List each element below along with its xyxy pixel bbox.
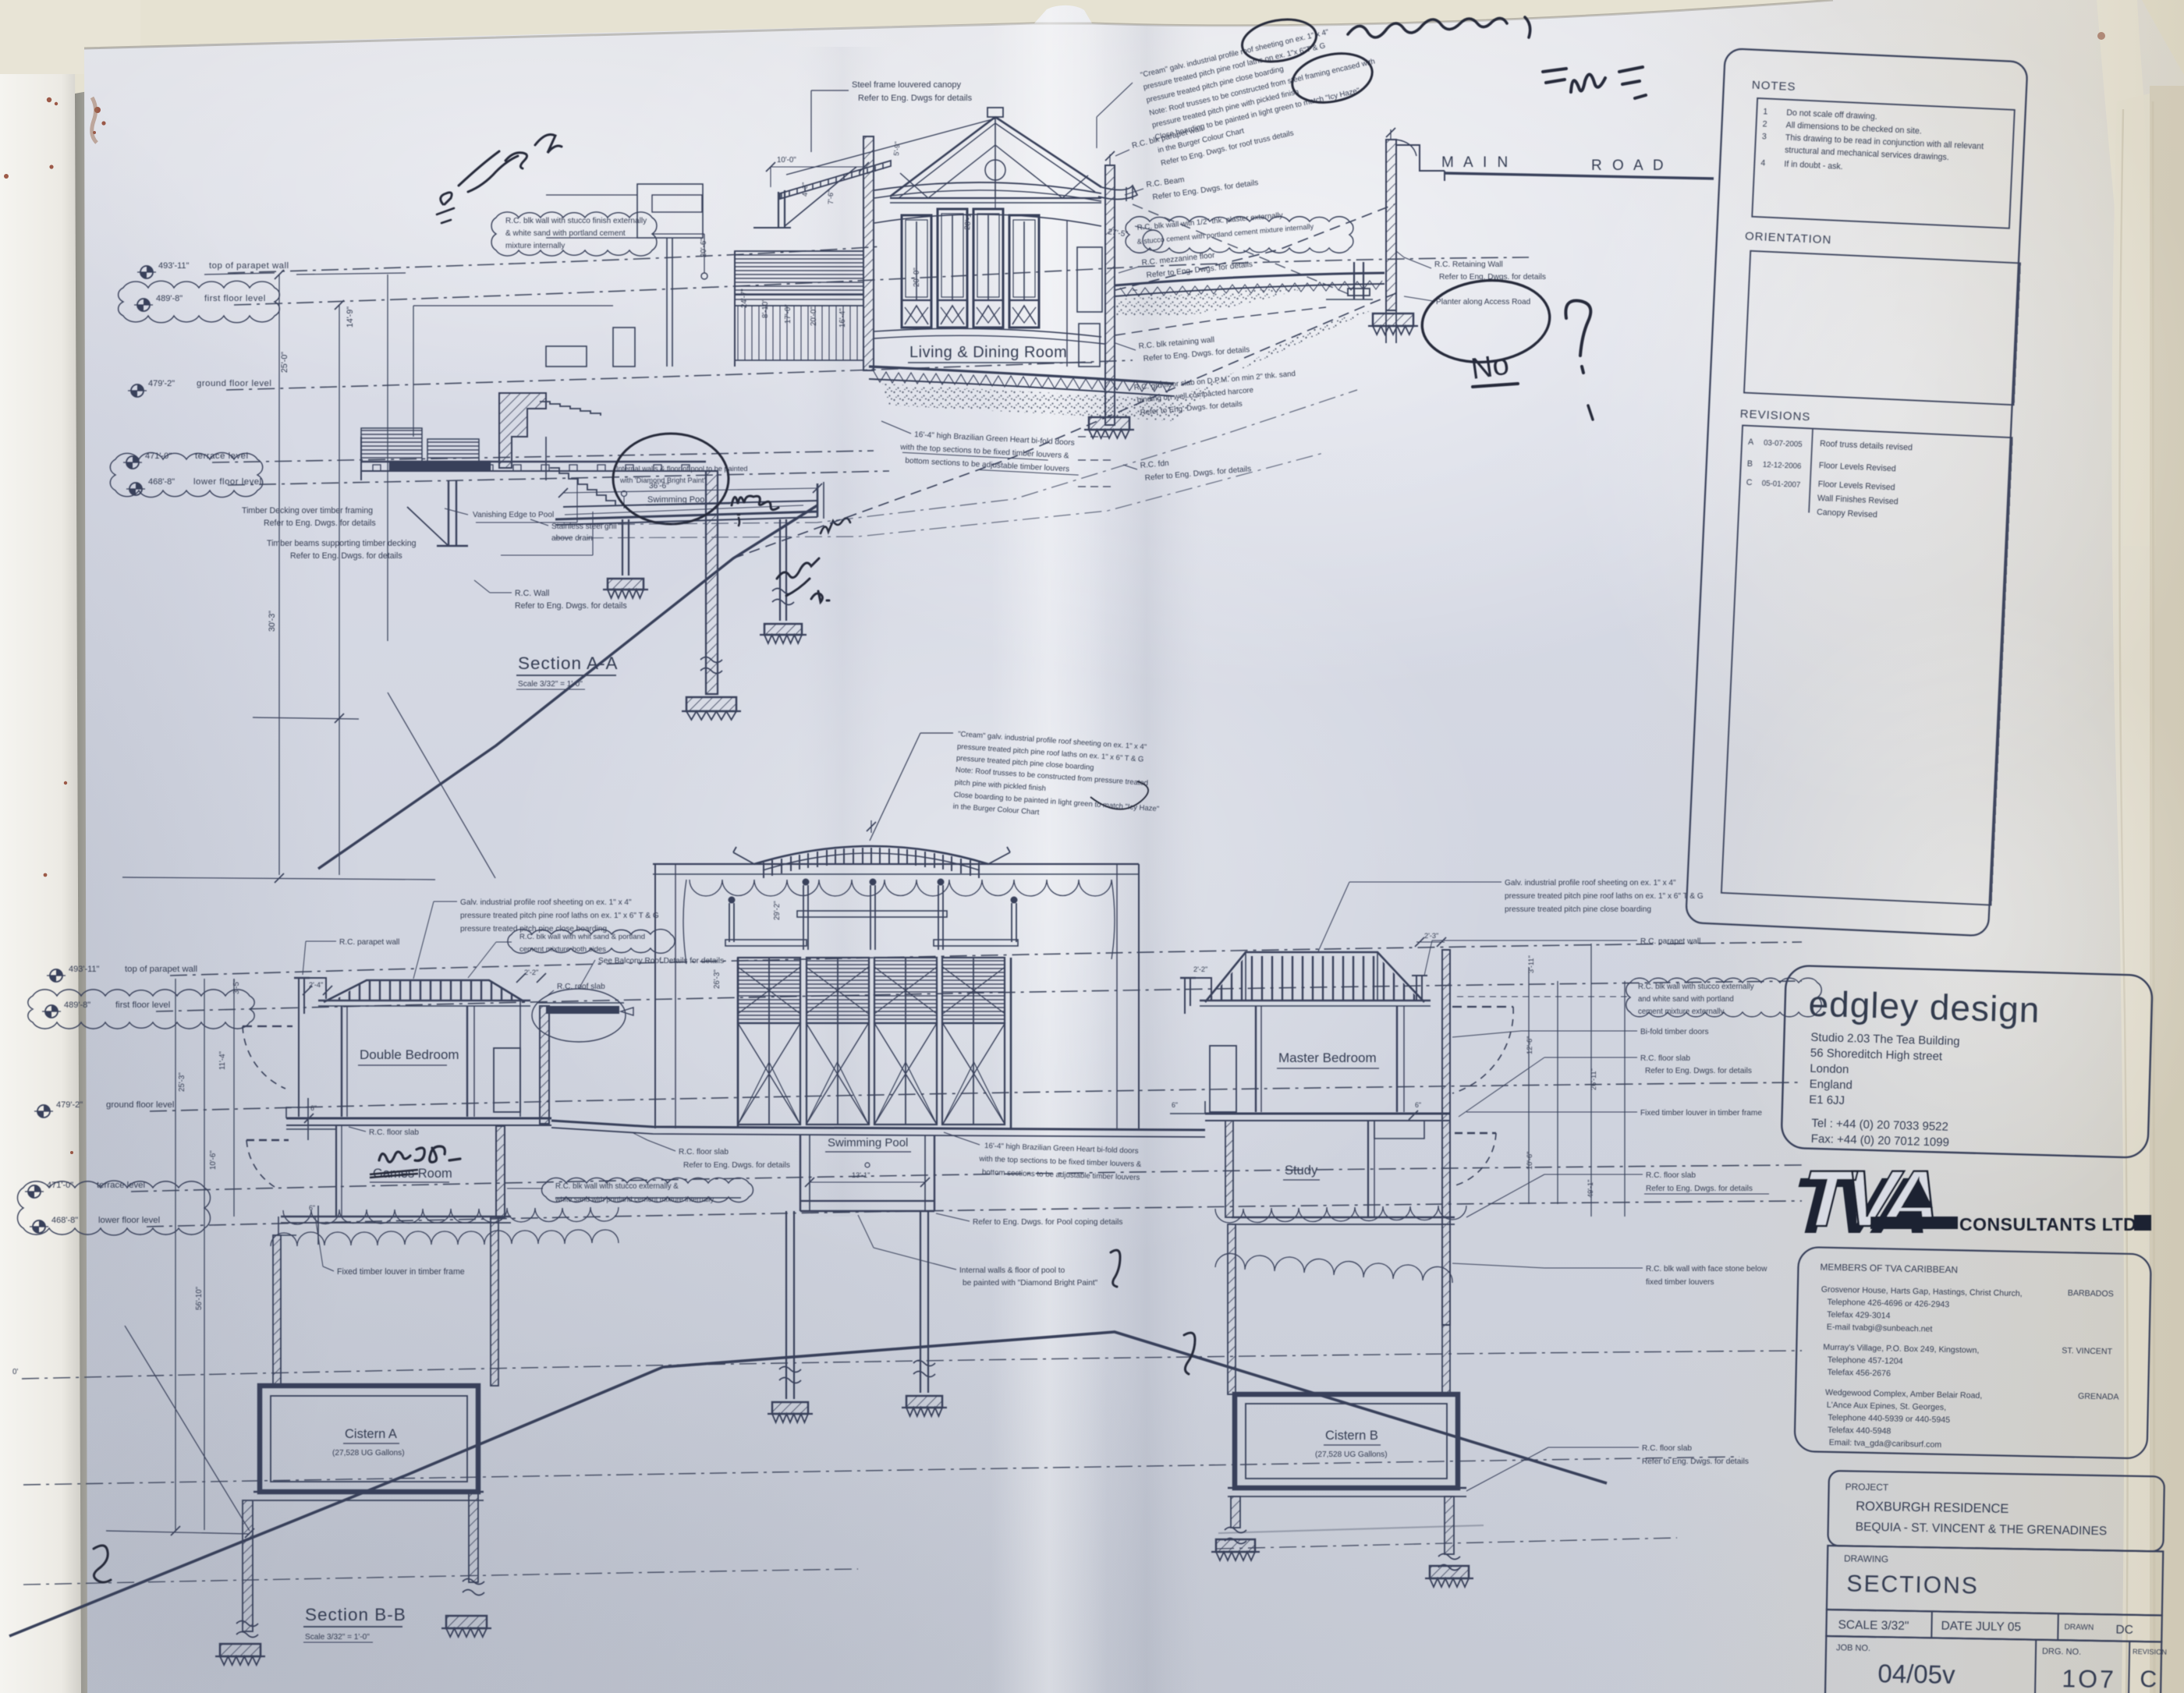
svg-text:05-01-2007: 05-01-2007 xyxy=(1761,480,1800,490)
svg-text:with 'Diamond Bright Paint': with 'Diamond Bright Paint' xyxy=(619,476,705,484)
svg-text:E1 6JJ: E1 6JJ xyxy=(1809,1093,1845,1107)
svg-text:R.C. parapet wall: R.C. parapet wall xyxy=(1640,937,1700,946)
svg-text:Telefax 440-5948: Telefax 440-5948 xyxy=(1828,1426,1891,1436)
svg-text:NOTES: NOTES xyxy=(1752,79,1796,94)
svg-text:R.C. blk wall with stucco fini: R.C. blk wall with stucco finish externa… xyxy=(505,217,647,225)
svg-text:Telefax 456-2676: Telefax 456-2676 xyxy=(1828,1368,1891,1379)
svg-text:16'-4": 16'-4" xyxy=(838,308,847,328)
svg-text:Internal walls & floor of pool: Internal walls & floor of pool to xyxy=(959,1266,1065,1275)
svg-text:Fixed timber louver in timber: Fixed timber louver in timber frame xyxy=(337,1267,465,1277)
svg-text:489'-8": 489'-8" xyxy=(156,294,183,303)
svg-text:6": 6" xyxy=(309,1204,315,1212)
svg-text:B: B xyxy=(1747,459,1753,469)
svg-text:R.C. Wall: R.C. Wall xyxy=(515,589,549,598)
svg-text:R.C. floor slab: R.C. floor slab xyxy=(1640,1054,1690,1063)
svg-text:(27,528 UG Gallons): (27,528 UG Gallons) xyxy=(1315,1450,1388,1459)
svg-text:DRAWING: DRAWING xyxy=(1844,1553,1888,1564)
svg-text:C: C xyxy=(2140,1666,2157,1692)
svg-text:Swimming Pool: Swimming Pool xyxy=(828,1136,908,1149)
svg-text:cement mixture both sides: cement mixture both sides xyxy=(519,945,606,954)
svg-text:6": 6" xyxy=(1415,1101,1421,1109)
svg-text:R.C. floor slab: R.C. floor slab xyxy=(1646,1171,1696,1180)
svg-text:DATE JULY 05: DATE JULY 05 xyxy=(1941,1620,2021,1635)
svg-text:3: 3 xyxy=(1762,132,1767,141)
svg-text:0': 0' xyxy=(12,1368,18,1376)
svg-text:4'-3": 4'-3" xyxy=(801,182,809,197)
svg-text:12-12-2006: 12-12-2006 xyxy=(1763,461,1802,471)
svg-text:Steel frame louvered canopy: Steel frame louvered canopy xyxy=(852,80,962,90)
svg-text:3'-5": 3'-5" xyxy=(232,979,241,994)
svg-text:Refer to Eng. Dwgs. for detail: Refer to Eng. Dwgs. for details xyxy=(683,1161,790,1170)
svg-text:Refer to Eng. Dwgs. for detail: Refer to Eng. Dwgs. for details xyxy=(264,519,376,528)
svg-text:28'-1": 28'-1" xyxy=(963,210,973,230)
svg-text:DC: DC xyxy=(2115,1623,2133,1636)
svg-text:Cistern B: Cistern B xyxy=(1325,1429,1378,1443)
svg-text:10'-6": 10'-6" xyxy=(1526,1152,1533,1170)
svg-text:See Balcony Roof Details for d: See Balcony Roof Details for details xyxy=(598,957,724,965)
svg-text:DRAWN: DRAWN xyxy=(2064,1623,2094,1632)
svg-text:Refer to Eng. Dwgs for details: Refer to Eng. Dwgs for details xyxy=(858,94,973,103)
svg-text:13'-1": 13'-1" xyxy=(852,1171,870,1179)
svg-text:SECTIONS: SECTIONS xyxy=(1846,1571,1979,1599)
svg-text:PROJECT: PROJECT xyxy=(1845,1481,1889,1493)
svg-text:Section A-A: Section A-A xyxy=(518,653,619,673)
svg-text:pressure treated pitch pine cl: pressure treated pitch pine close boardi… xyxy=(1505,905,1651,914)
svg-text:2'-2": 2'-2" xyxy=(1193,965,1207,973)
svg-text:ST. VINCENT: ST. VINCENT xyxy=(2062,1346,2113,1356)
svg-text:Refer to Eng. Dwgs. for detail: Refer to Eng. Dwgs. for details xyxy=(290,551,402,561)
svg-text:6": 6" xyxy=(310,1104,317,1112)
svg-text:ROXBURGH RESIDENCE: ROXBURGH RESIDENCE xyxy=(1856,1500,2008,1516)
svg-text:6": 6" xyxy=(1172,1101,1178,1109)
svg-text:4: 4 xyxy=(1760,158,1766,168)
svg-text:R.C. blk wall with stucco exte: R.C. blk wall with stucco externally & xyxy=(555,1182,679,1191)
svg-text:London: London xyxy=(1810,1062,1849,1076)
svg-text:R.C. parapet wall: R.C. parapet wall xyxy=(339,938,399,947)
svg-text:REVISION: REVISION xyxy=(2133,1648,2167,1656)
svg-text:and white sand with portland: and white sand with portland xyxy=(1638,995,1734,1004)
svg-text:49'-1": 49'-1" xyxy=(1587,1180,1594,1198)
svg-text:56'-10": 56'-10" xyxy=(195,1286,204,1310)
svg-text:468'-8": 468'-8" xyxy=(148,477,175,487)
svg-text:26'-3": 26'-3" xyxy=(713,969,721,989)
svg-text:& white sand with portland cem: & white sand with portland cement xyxy=(505,229,626,238)
svg-text:R O A D: R O A D xyxy=(1591,158,1667,174)
svg-text:20'-0": 20'-0" xyxy=(913,267,921,287)
svg-text:white sand with portland cemen: white sand with portland cement mixture … xyxy=(555,1195,714,1203)
svg-text:1: 1 xyxy=(1763,107,1768,116)
svg-text:Planter along Access Road: Planter along Access Road xyxy=(1436,298,1530,306)
svg-text:468'-8": 468'-8" xyxy=(51,1216,78,1225)
svg-text:mixture internally: mixture internally xyxy=(505,242,565,250)
svg-text:pressure treated pitch pine ro: pressure treated pitch pine roof laths o… xyxy=(1505,892,1704,901)
svg-text:R.C. floor slab: R.C. floor slab xyxy=(679,1148,729,1156)
svg-text:479'-2": 479'-2" xyxy=(56,1100,83,1110)
svg-text:Study: Study xyxy=(1285,1163,1318,1178)
svg-text:Timber Decking over timber fra: Timber Decking over timber framing xyxy=(242,506,373,515)
svg-text:10'-6": 10'-6" xyxy=(209,1150,218,1170)
svg-text:Cistern A: Cistern A xyxy=(345,1427,397,1441)
svg-text:Refer to Eng. Dwgs. for detail: Refer to Eng. Dwgs. for details xyxy=(1646,1185,1753,1193)
svg-text:R.C. blk wall with face stone: R.C. blk wall with face stone below xyxy=(1646,1265,1767,1273)
svg-text:be painted with "Diamond Brigh: be painted with "Diamond Bright Paint" xyxy=(963,1279,1098,1287)
svg-text:20'-6": 20'-6" xyxy=(700,238,708,257)
svg-text:first floor level: first floor level xyxy=(204,294,266,303)
svg-text:24'-7": 24'-7" xyxy=(740,289,749,308)
svg-text:3'-11": 3'-11" xyxy=(1527,955,1535,973)
svg-text:Living & Dining Room: Living & Dining Room xyxy=(909,344,1067,361)
svg-text:Refer to Eng. Dwgs. for detail: Refer to Eng. Dwgs. for details xyxy=(1642,1457,1749,1466)
svg-text:ground floor level: ground floor level xyxy=(197,379,271,388)
svg-text:R.C. blk wall with stucco exte: R.C. blk wall with stucco externally xyxy=(1638,983,1754,991)
svg-text:2: 2 xyxy=(1762,119,1767,129)
svg-text:12'-6": 12'-6" xyxy=(1526,1036,1533,1054)
svg-text:lower floor level: lower floor level xyxy=(98,1216,160,1225)
svg-text:Fixed timber louver in timber: Fixed timber louver in timber frame xyxy=(1640,1109,1762,1117)
svg-text:Section B-B: Section B-B xyxy=(305,1605,406,1624)
svg-text:fixed timber louvers: fixed timber louvers xyxy=(1646,1278,1714,1287)
svg-text:No: No xyxy=(1469,349,1511,386)
svg-text:Telephone 457-1204: Telephone 457-1204 xyxy=(1828,1355,1903,1366)
svg-text:11'-4": 11'-4" xyxy=(218,1050,227,1070)
svg-text:Galv. industrial profile roof: Galv. industrial profile roof sheeting o… xyxy=(1505,879,1676,887)
svg-text:Vanishing Edge to Pool: Vanishing Edge to Pool xyxy=(473,511,554,519)
svg-text:10'-0": 10'-0" xyxy=(777,156,796,165)
svg-text:BARBADOS: BARBADOS xyxy=(2068,1288,2114,1298)
svg-text:ground floor level: ground floor level xyxy=(106,1100,174,1110)
svg-text:lower floor level: lower floor level xyxy=(193,477,262,487)
svg-text:493'-11": 493'-11" xyxy=(69,965,100,974)
svg-text:Master Bedroom: Master Bedroom xyxy=(1278,1050,1377,1065)
svg-text:JOB NO.: JOB NO. xyxy=(1836,1643,1870,1653)
svg-text:14'-9": 14'-9" xyxy=(346,306,355,328)
svg-text:Scale 3/32" = 1'-0": Scale 3/32" = 1'-0" xyxy=(305,1633,370,1642)
svg-text:GRENADA: GRENADA xyxy=(2078,1392,2120,1402)
svg-text:26'-11": 26'-11" xyxy=(1590,1068,1597,1090)
svg-text:Telefax 429-3014: Telefax 429-3014 xyxy=(1827,1310,1891,1321)
svg-text:top of parapet wall: top of parapet wall xyxy=(125,965,197,974)
svg-text:Double Bedroom: Double Bedroom xyxy=(360,1047,459,1062)
svg-text:25'-0": 25'-0" xyxy=(280,352,289,373)
svg-text:Refer to Eng. Dwgs. for detail: Refer to Eng. Dwgs. for details xyxy=(1645,1067,1752,1075)
svg-text:R.C. blk wall with whit sand &: R.C. blk wall with whit sand & portland xyxy=(519,933,645,941)
svg-text:England: England xyxy=(1810,1078,1853,1093)
svg-text:30'-3": 30'-3" xyxy=(268,611,277,632)
svg-text:25'-3": 25'-3" xyxy=(178,1072,186,1092)
svg-text:493'-11": 493'-11" xyxy=(158,261,190,271)
svg-text:1O7: 1O7 xyxy=(2062,1664,2116,1693)
svg-text:Refer to Eng. Dwgs. for detail: Refer to Eng. Dwgs. for details xyxy=(515,601,627,611)
svg-text:Galv. industrial profile roof: Galv. industrial profile roof sheeting o… xyxy=(460,898,632,907)
svg-text:Stainless steel grill: Stainless steel grill xyxy=(551,522,617,531)
svg-text:pressure treated pitch pine ro: pressure treated pitch pine roof laths o… xyxy=(460,912,659,920)
svg-text:cement mixture externally: cement mixture externally xyxy=(1638,1008,1725,1016)
svg-text:17'-0": 17'-0" xyxy=(784,304,792,324)
svg-text:R.C. floor slab: R.C. floor slab xyxy=(369,1128,419,1137)
svg-text:2'-3": 2'-3" xyxy=(1424,932,1438,940)
svg-text:R.C. floor slab: R.C. floor slab xyxy=(1642,1444,1692,1453)
svg-text:Bi-fold timber doors: Bi-fold timber doors xyxy=(1640,1028,1709,1036)
svg-text:03-07-2005: 03-07-2005 xyxy=(1764,439,1803,449)
svg-text:edgley design: edgley design xyxy=(1808,983,2040,1030)
svg-text:Refer to Eng. Dwgs. for Pool c: Refer to Eng. Dwgs. for Pool coping deta… xyxy=(973,1218,1122,1227)
svg-text:Timber beams supporting timber: Timber beams supporting timber decking xyxy=(267,539,417,548)
svg-text:(27,528 UG Gallons): (27,528 UG Gallons) xyxy=(332,1449,405,1457)
svg-text:8'-10": 8'-10" xyxy=(761,299,770,318)
svg-text:DRG. NO.: DRG. NO. xyxy=(2042,1647,2081,1657)
svg-text:20'-0": 20'-0" xyxy=(810,306,818,326)
svg-text:29'-2": 29'-2" xyxy=(773,901,782,920)
svg-text:04/05v: 04/05v xyxy=(1877,1659,1955,1689)
svg-text:5'-9": 5'-9" xyxy=(892,141,902,156)
svg-text:C: C xyxy=(1746,478,1753,487)
svg-text:7'-6": 7'-6" xyxy=(827,190,835,204)
svg-text:M A I N: M A I N xyxy=(1441,154,1511,171)
svg-text:489'-8": 489'-8" xyxy=(64,1001,90,1010)
svg-text:R.C. Retaining Wall: R.C. Retaining Wall xyxy=(1434,260,1503,269)
svg-text:479'-2": 479'-2" xyxy=(148,379,175,388)
svg-text:CONSULTANTS LTD: CONSULTANTS LTD xyxy=(1959,1214,2136,1234)
svg-text:first floor level: first floor level xyxy=(115,1001,170,1010)
svg-text:top of parapet wall: top of parapet wall xyxy=(209,261,289,271)
svg-text:SCALE 3/32": SCALE 3/32" xyxy=(1838,1618,1909,1633)
svg-text:2'-4": 2'-4" xyxy=(309,981,323,989)
svg-text:2'-2": 2'-2" xyxy=(524,969,538,976)
